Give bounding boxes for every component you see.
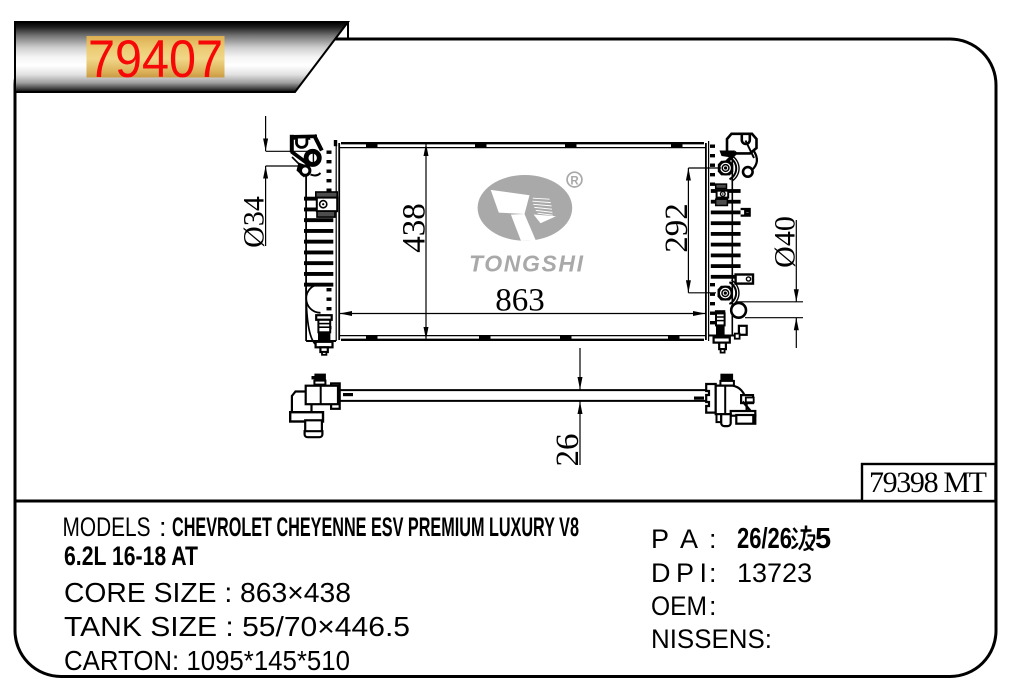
svg-text:CORE SIZE : 863×438: CORE SIZE : 863×438 — [64, 577, 351, 608]
svg-text:6.2L 16-18 AT: 6.2L 16-18 AT — [64, 540, 198, 571]
svg-text:26/26: 26/26 — [737, 523, 792, 555]
svg-text:292: 292 — [659, 203, 695, 253]
svg-text:TANK SIZE : 55/70×446.5: TANK SIZE : 55/70×446.5 — [64, 611, 410, 642]
svg-text::: : — [159, 511, 167, 542]
svg-text:R: R — [570, 175, 579, 187]
svg-text:863: 863 — [495, 283, 545, 319]
svg-text:TONGSHI: TONGSHI — [469, 251, 584, 277]
svg-text:NISSENS:: NISSENS: — [651, 624, 772, 654]
svg-text:Ø40: Ø40 — [769, 216, 802, 268]
svg-text:CHEVROLET CHEYENNE ESV PREMIUM: CHEVROLET CHEYENNE ESV PREMIUM LUXURY V8 — [172, 511, 579, 542]
svg-text:13723: 13723 — [737, 558, 812, 588]
svg-text:CARTON: 1095*145*510: CARTON: 1095*145*510 — [64, 645, 350, 676]
svg-text:DPI: DPI — [651, 558, 707, 588]
svg-text::: : — [709, 591, 717, 621]
svg-text::: : — [709, 558, 717, 588]
svg-text:OEM: OEM — [651, 591, 707, 621]
svg-text:5: 5 — [815, 523, 831, 555]
svg-text:79407: 79407 — [88, 30, 223, 89]
svg-text:MODELS: MODELS — [63, 511, 151, 542]
svg-text:26: 26 — [550, 434, 586, 467]
svg-text:Ø34: Ø34 — [238, 196, 271, 248]
svg-text:438: 438 — [397, 203, 433, 253]
svg-text:79398 MT: 79398 MT — [869, 466, 987, 499]
